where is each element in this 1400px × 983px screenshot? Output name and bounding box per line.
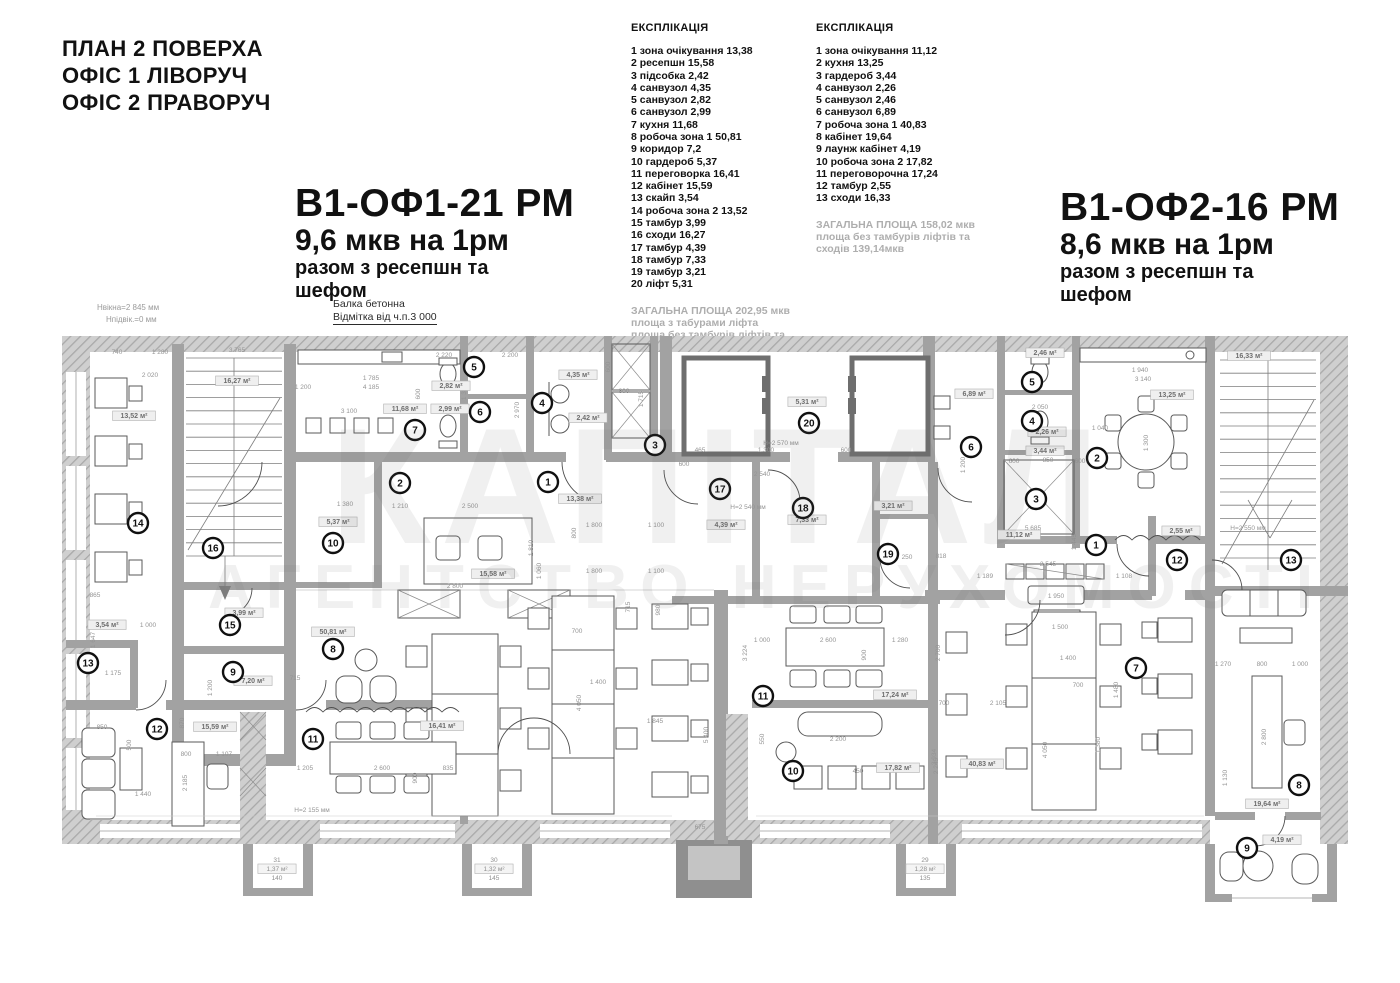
dim-label: 1 100 [648, 568, 665, 575]
dim-label: 800 [619, 388, 630, 395]
area-label: 2,55 м² [1169, 528, 1193, 535]
balconies [243, 840, 956, 898]
floor-plan: 7401 2803 7652 0201 2001 7854 1853 1002 … [0, 0, 1400, 983]
dim-label: 818 [936, 553, 947, 560]
room-marker-number: 2 [397, 479, 403, 490]
dim-label: H=2 155 мм [294, 807, 330, 814]
room-marker-number: 4 [1029, 417, 1035, 428]
room-marker-number: 6 [968, 443, 974, 454]
area-label: 3,21 м² [881, 503, 905, 510]
dim-label: 1 210 [392, 503, 409, 510]
room-marker-number: 13 [1285, 556, 1297, 567]
room-marker-office1-6: 6 [470, 402, 490, 422]
dim-label: 865 [90, 592, 101, 599]
dim-label: 1 270 [1215, 661, 1232, 668]
area-label: 3,54 м² [95, 622, 119, 629]
room-marker-office2-3: 3 [1026, 489, 1046, 509]
stairs-right [1220, 360, 1316, 570]
area-label: 5,37 м² [326, 519, 350, 526]
room-marker-number: 10 [327, 539, 339, 550]
dim-label: 675 [695, 824, 706, 831]
area-label: 11,68 м² [392, 406, 419, 413]
dim-label: H=2 570 мм [763, 440, 799, 447]
dim-label: 2 600 [374, 765, 391, 772]
dim-label: 5 400 [703, 726, 710, 743]
dim-label: 1 400 [590, 679, 607, 686]
dim-label: 1 108 [1116, 573, 1133, 580]
room-marker-number: 4 [539, 399, 545, 410]
room-marker-office2-13: 13 [1281, 550, 1301, 570]
room-marker-number: 19 [882, 550, 894, 561]
area-label: 3,44 м² [1033, 448, 1057, 455]
room-marker-number: 9 [230, 668, 236, 679]
area-label: 16,41 м² [429, 723, 457, 730]
dim-label: 1 440 [135, 791, 152, 798]
area-label: 17,24 м² [882, 692, 910, 699]
dim-label: 1 800 [586, 522, 603, 529]
area-label: 6,89 м² [962, 391, 986, 398]
room-marker-office2-2: 2 [1087, 448, 1107, 468]
room-marker-number: 11 [308, 735, 319, 746]
dim-label: 2 020 [142, 372, 159, 379]
dim-label: 1 280 [892, 637, 909, 644]
room-marker-office2-4: 4 [1022, 411, 1042, 431]
balcony-label: 1,32 м² [483, 866, 505, 873]
room-marker-office2-6: 6 [961, 437, 981, 457]
dim-label: 1 950 [1048, 593, 1065, 600]
dim-label: 2 220 [436, 352, 453, 359]
dim-label: 1 810 [528, 539, 535, 556]
area-label: 4,35 м² [566, 372, 590, 379]
dim-label: 700 [572, 628, 583, 635]
dim-label: 2 970 [514, 401, 521, 418]
room-marker-office2-9: 9 [1237, 838, 1257, 858]
dim-label: 600 [1075, 458, 1086, 465]
area-label: 7,20 м² [241, 678, 265, 685]
dim-label: 1 785 [363, 375, 380, 382]
dim-label: 600 [841, 447, 852, 454]
room-marker-office1-5: 5 [464, 357, 484, 377]
area-label: 13,38 м² [567, 496, 595, 503]
room-marker-office2-5: 5 [1022, 372, 1042, 392]
dim-label: 2 200 [830, 736, 847, 743]
room-marker-number: 5 [471, 363, 477, 374]
room-marker-office2-7: 7 [1126, 658, 1146, 678]
room-marker-office1-13: 13 [78, 653, 98, 673]
room-marker-number: 20 [803, 419, 815, 430]
area-label: 16,27 м² [224, 378, 252, 385]
dim-label: 850 [97, 724, 108, 731]
dim-label: 1 200 [960, 456, 967, 473]
room-marker-number: 7 [412, 426, 418, 437]
room-marker-office2-12: 12 [1167, 550, 1187, 570]
balcony-label: 145 [489, 875, 500, 882]
area-label: 40,83 м² [969, 761, 997, 768]
area-label: 19,64 м² [1254, 801, 1282, 808]
area-label: 2,46 м² [1033, 350, 1057, 357]
dim-label: 1 940 [1132, 367, 1149, 374]
dim-label: 740 [112, 349, 123, 356]
dim-label: 1 189 [977, 573, 994, 580]
dim-label: 1 205 [297, 765, 314, 772]
room-marker-office1-10: 10 [323, 533, 343, 553]
balcony-label: 1,37 м² [266, 866, 288, 873]
dim-label: 2 200 [502, 352, 519, 359]
dim-label: 2 050 [1032, 404, 1049, 411]
room-marker-number: 8 [1296, 781, 1302, 792]
dim-label: 2 800 [1261, 728, 1268, 745]
room-marker-office1-11: 11 [303, 729, 323, 749]
area-label: 5,31 м² [795, 399, 819, 406]
dim-label: 2 545 [1040, 561, 1057, 568]
area-label: 13,52 м² [121, 413, 149, 420]
room-marker-number: 7 [1133, 664, 1139, 675]
room-marker-number: 1 [545, 478, 551, 489]
dim-label: 1 107 [216, 751, 233, 758]
room-marker-number: 1 [1093, 541, 1099, 552]
dim-label: 1 500 [1052, 624, 1069, 631]
room-marker-office1-1: 1 [538, 472, 558, 492]
room-marker-number: 17 [714, 485, 726, 496]
room-marker-number: 9 [1244, 844, 1250, 855]
balcony-label: 1,28 м² [914, 866, 936, 873]
room-marker-number: 2 [1094, 454, 1100, 465]
dim-label: 1 845 [647, 718, 664, 725]
dim-label: 2 540 [754, 471, 771, 478]
dim-label: 715 [625, 601, 632, 612]
room-marker-number: 13 [82, 659, 94, 670]
dim-label: 2 245 [933, 757, 940, 774]
balcony-labels: 311,37 м²140301,32 м²145291,28 м²135 [258, 857, 944, 882]
room-marker-office1-16: 16 [203, 538, 223, 558]
dim-label: 700 [1073, 682, 1084, 689]
dim-label: 2 700 [935, 644, 942, 661]
area-label: 4,19 м² [1270, 837, 1294, 844]
dim-label: 980 [655, 604, 662, 615]
dim-label: 1 380 [1095, 736, 1102, 753]
dim-label: 600 [679, 461, 690, 468]
room-marker-number: 3 [1033, 495, 1039, 506]
balcony-label: 30 [490, 857, 498, 864]
area-label: 50,81 м² [320, 629, 348, 636]
area-label: 11,12 м² [1006, 532, 1033, 539]
dim-label: 1 000 [1292, 661, 1309, 668]
dim-label: 700 [939, 700, 950, 707]
dim-label: 1 647 [90, 631, 97, 648]
dim-label: 1 400 [1060, 655, 1077, 662]
room-marker-number: 10 [787, 767, 799, 778]
stairs-left [186, 358, 282, 600]
dim-label: 1 715 [638, 390, 645, 407]
dim-label: 600 [605, 361, 612, 372]
dim-label: 1 300 [1143, 434, 1150, 451]
dim-label: 850 [1043, 457, 1054, 464]
dim-label: 1 040 [1092, 425, 1109, 432]
room-marker-office1-15: 15 [220, 615, 240, 635]
room-marker-number: 12 [1171, 556, 1183, 567]
balcony-label: 140 [272, 875, 283, 882]
dim-label: 4 185 [363, 384, 380, 391]
dim-label: 800 [181, 751, 192, 758]
room-marker-office1-18: 18 [793, 498, 813, 518]
room-marker-office1-14: 14 [128, 513, 148, 533]
dim-label: 1 800 [586, 568, 603, 575]
dim-label: 1 000 [754, 637, 771, 644]
room-marker-number: 18 [797, 504, 809, 515]
room-marker-number: 5 [1029, 378, 1035, 389]
dim-label: 600 [1009, 458, 1020, 465]
area-label: 15,59 м² [202, 724, 230, 731]
room-marker-office2-10: 10 [783, 761, 803, 781]
room-marker-number: 16 [207, 544, 219, 555]
dim-label: 835 [443, 765, 454, 772]
room-marker-office1-3: 3 [645, 435, 665, 455]
dim-label: 3 100 [341, 408, 358, 415]
dim-label: 1 300 [758, 447, 775, 454]
dim-label: H=2 540 мм [730, 504, 766, 511]
dim-label: 1 445 [1071, 533, 1078, 550]
dim-label: 900 [412, 772, 419, 783]
dim-label: 800 [571, 527, 578, 538]
page: ПЛАН 2 ПОВЕРХА ОФІС 1 ЛІВОРУЧ ОФІС 2 ПРА… [0, 0, 1400, 983]
area-label: 2,82 м² [439, 383, 463, 390]
dim-label: 4 050 [576, 694, 583, 711]
area-label: 16,33 м² [1236, 353, 1264, 360]
area-label: 2,42 м² [576, 415, 600, 422]
dim-label: 1 380 [337, 501, 354, 508]
dim-label: 250 [902, 554, 913, 561]
room-marker-number: 11 [758, 692, 769, 703]
room-marker-number: 15 [224, 621, 236, 632]
room-marker-number: 3 [652, 441, 658, 452]
room-marker-office1-19: 19 [878, 544, 898, 564]
area-label: 2,26 м² [1035, 429, 1059, 436]
dim-label: 3 140 [1135, 376, 1152, 383]
room-marker-office1-4: 4 [532, 393, 552, 413]
dim-label: 500 [126, 739, 133, 750]
dim-label: 1 060 [536, 562, 543, 579]
dim-label: H=2 550 мм [1230, 525, 1266, 532]
dim-label: 2 500 [462, 503, 479, 510]
dim-label: 600 [415, 388, 422, 399]
dim-label: 1 280 [152, 349, 169, 356]
area-label: 17,82 м² [885, 765, 913, 772]
dim-label: 2 185 [182, 774, 189, 791]
room-marker-number: 6 [477, 408, 483, 419]
dim-label: 2 105 [990, 700, 1007, 707]
balcony-label: 135 [920, 875, 931, 882]
room-marker-number: 8 [330, 645, 336, 656]
dim-label: 800 [1257, 661, 1268, 668]
dim-label: 900 [861, 649, 868, 660]
room-marker-office1-9: 9 [223, 662, 243, 682]
room-marker-office1-20: 20 [799, 413, 819, 433]
dim-label: 3 224 [742, 644, 749, 661]
area-label: 15,58 м² [480, 571, 508, 578]
dim-label: 1 480 [1113, 681, 1120, 698]
room-marker-number: 12 [151, 725, 163, 736]
dim-label: 1 130 [1222, 769, 1229, 786]
area-label: 4,39 м² [714, 522, 738, 529]
dim-label: 1 000 [140, 622, 157, 629]
dim-label: 1 200 [295, 384, 312, 391]
dim-label: 1 175 [105, 670, 122, 677]
dim-label: 715 [290, 675, 301, 682]
balcony-label: 31 [273, 857, 281, 864]
room-marker-office2-8: 8 [1289, 775, 1309, 795]
room-marker-office1-17: 17 [710, 479, 730, 499]
dim-label: 1 200 [207, 679, 214, 696]
balcony-label: 29 [921, 857, 929, 864]
dim-label: 550 [759, 733, 766, 744]
area-label: 2,99 м² [438, 406, 462, 413]
room-marker-office1-2: 2 [390, 473, 410, 493]
dim-label: 1 100 [648, 522, 665, 529]
room-marker-office2-11: 11 [753, 686, 773, 706]
dim-label: 4 050 [1042, 741, 1049, 758]
room-marker-number: 14 [132, 519, 144, 530]
dim-label: 450 [853, 768, 864, 775]
room-marker-office1-7: 7 [405, 420, 425, 440]
dim-label: 465 [695, 447, 706, 454]
dim-label: 2 600 [820, 637, 837, 644]
dim-label: 870 [179, 717, 186, 728]
room-marker-office1-8: 8 [323, 639, 343, 659]
dim-label: 2 800 [447, 583, 464, 590]
area-label: 13,25 м² [1159, 392, 1187, 399]
room-marker-office2-1: 1 [1086, 535, 1106, 555]
room-marker-office1-12: 12 [147, 719, 167, 739]
dim-label: 3 765 [229, 347, 246, 354]
